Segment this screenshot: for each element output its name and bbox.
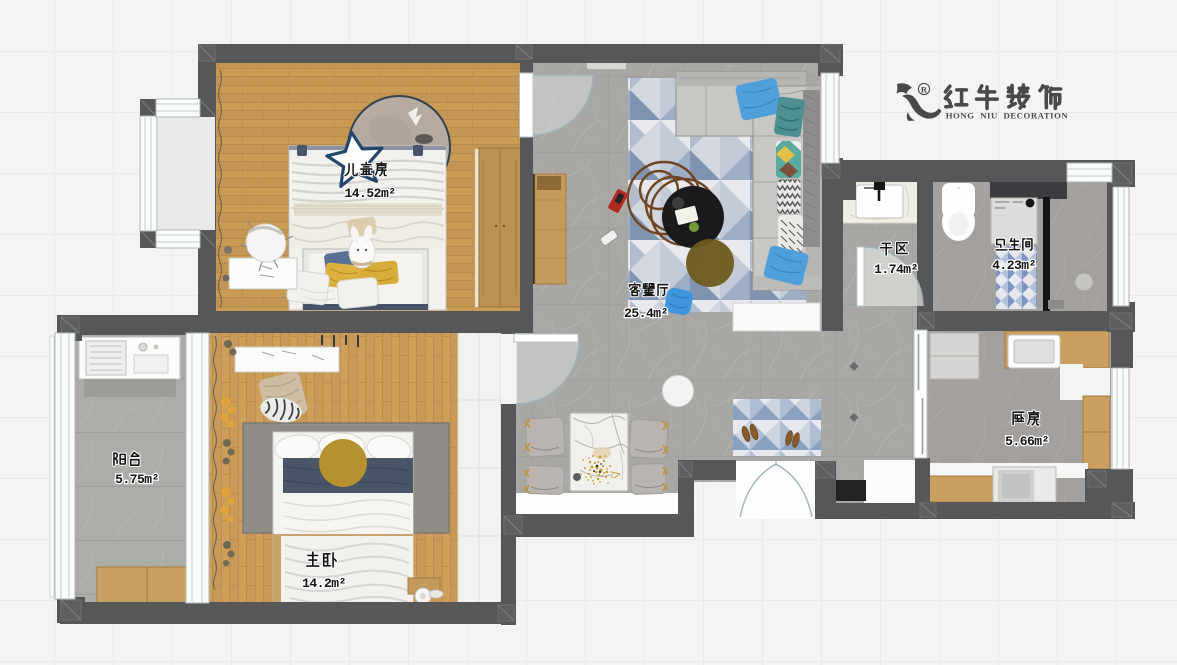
svg-text:R: R xyxy=(921,84,928,94)
svg-text:14.2m²: 14.2m² xyxy=(302,576,346,591)
svg-text:5.75m²: 5.75m² xyxy=(115,472,159,487)
svg-text:5.66m²: 5.66m² xyxy=(1005,434,1049,449)
svg-text:1.74m²: 1.74m² xyxy=(874,262,918,277)
svg-text:25.4m²: 25.4m² xyxy=(624,306,668,321)
svg-text:HONG NIU DECORATION: HONG NIU DECORATION xyxy=(946,111,1069,121)
svg-text:4.23m²: 4.23m² xyxy=(992,258,1036,273)
svg-text:14.52m²: 14.52m² xyxy=(344,186,395,201)
